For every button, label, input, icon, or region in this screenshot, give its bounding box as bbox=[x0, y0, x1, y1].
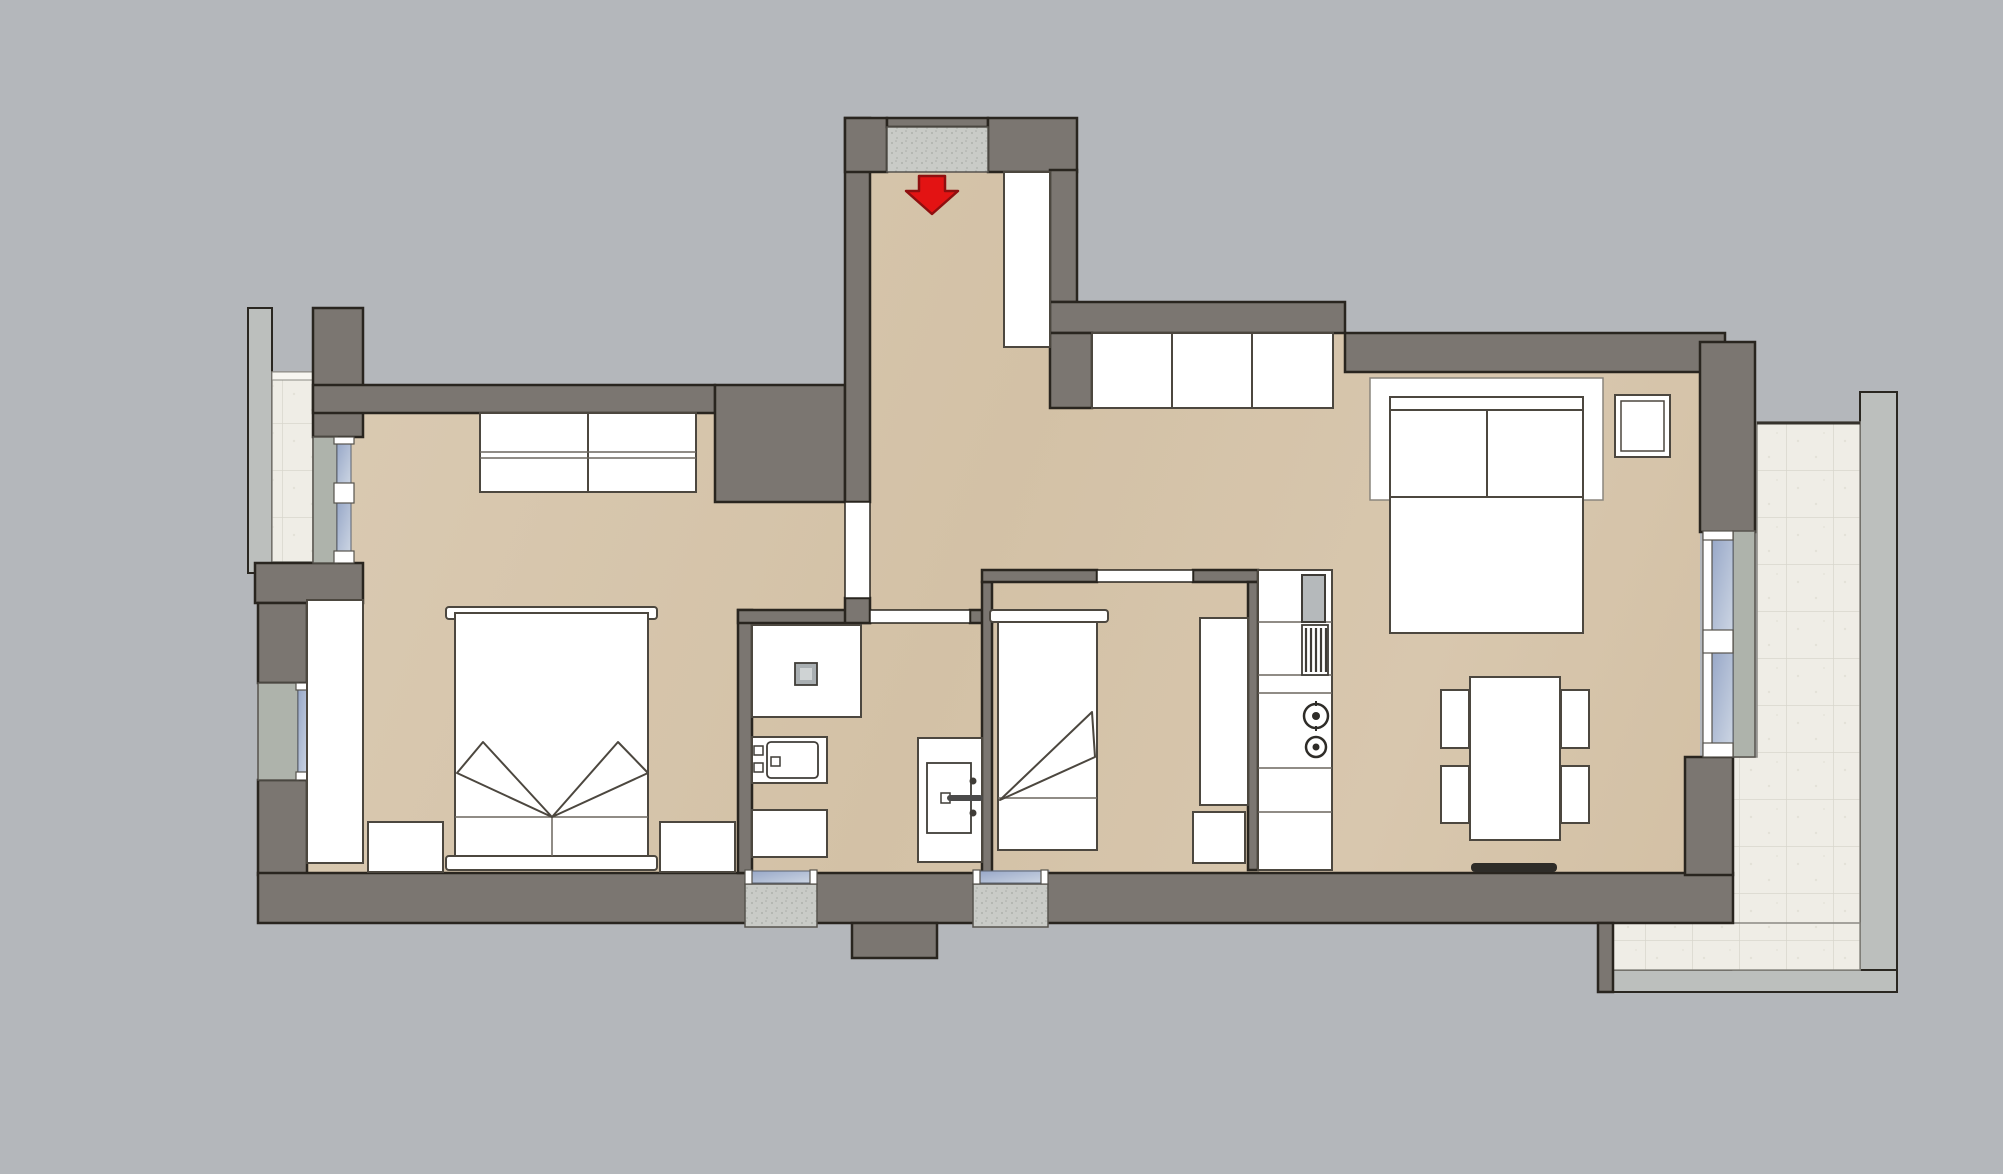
wall-pillar-bottom bbox=[852, 923, 937, 958]
window-right-balcony bbox=[1703, 531, 1755, 757]
wall-left-mid bbox=[255, 563, 363, 603]
window-left-upper bbox=[313, 437, 354, 563]
bedside-cabinet bbox=[1193, 812, 1245, 863]
wall-corridor-left bbox=[845, 118, 870, 502]
wall-bedroom2-left bbox=[982, 582, 992, 873]
door-hinge bbox=[970, 778, 977, 785]
window-glass bbox=[1712, 653, 1733, 743]
dish-drainer bbox=[1302, 625, 1328, 675]
window-frame bbox=[1041, 870, 1048, 884]
wall-entry-top bbox=[887, 118, 988, 127]
window-frame bbox=[810, 870, 817, 884]
dining-chair bbox=[1561, 766, 1589, 823]
radiator bbox=[1471, 863, 1557, 872]
wardrobe bbox=[1200, 618, 1248, 805]
wall-right-upper bbox=[1700, 342, 1755, 532]
wall-bedroom-top bbox=[313, 385, 715, 413]
window-frame bbox=[973, 870, 980, 884]
wall-bedroom2-top-left bbox=[982, 570, 1097, 582]
window-glass bbox=[1712, 540, 1733, 630]
nightstand-left bbox=[368, 822, 443, 872]
cooktop-burner-small bbox=[1306, 737, 1326, 757]
window-bottom-bathroom bbox=[745, 870, 817, 927]
window-frame bbox=[1703, 743, 1733, 757]
window-frame bbox=[745, 870, 752, 884]
window-bottom-bedroom2 bbox=[973, 870, 1048, 927]
bed-headboard bbox=[446, 856, 657, 870]
sofa-backrest bbox=[1390, 397, 1583, 410]
wall-top-band-b bbox=[1345, 333, 1725, 372]
wall-bottom-right-corner bbox=[1598, 923, 1613, 992]
dining-chair bbox=[1561, 690, 1589, 748]
washing-machine bbox=[752, 810, 827, 857]
second-bedroom-doorway bbox=[1097, 570, 1193, 582]
wall-left-b bbox=[258, 780, 307, 875]
upper-cabinets bbox=[1092, 333, 1333, 408]
main-bedroom-doorway bbox=[845, 502, 870, 598]
wall-entry-jamb-left bbox=[845, 118, 887, 172]
dining-chair bbox=[1441, 690, 1469, 748]
dining-chair bbox=[1441, 766, 1469, 823]
wall-right-lower bbox=[1685, 757, 1733, 875]
window-glass bbox=[337, 503, 351, 551]
tap bbox=[754, 746, 763, 755]
wall-top-band-a bbox=[1050, 302, 1345, 333]
wall-bathroom-left bbox=[738, 610, 752, 873]
window-frame bbox=[334, 483, 354, 503]
left-balcony-sill bbox=[272, 372, 313, 380]
wall-left-top-column bbox=[313, 308, 363, 437]
wall-cabinet-pier bbox=[1050, 333, 1092, 408]
floor-plan bbox=[0, 0, 2003, 1174]
left-balcony-railing bbox=[248, 308, 272, 573]
window-frame bbox=[334, 437, 354, 444]
window-glass bbox=[980, 871, 1041, 883]
wall-bedroom2-top-right bbox=[1193, 570, 1258, 582]
sofa-bed-mattress bbox=[1390, 497, 1583, 633]
entrance-threshold bbox=[887, 127, 988, 172]
window-sill bbox=[313, 437, 337, 563]
bottom-balcony-railing bbox=[1613, 970, 1897, 992]
window-sill bbox=[258, 683, 298, 780]
wall-entry-jamb-right bbox=[988, 118, 1077, 172]
window-frame bbox=[1703, 531, 1733, 540]
kitchen-counter bbox=[1258, 570, 1332, 870]
window-sill bbox=[973, 884, 1048, 927]
left-balcony-tiles bbox=[272, 372, 313, 562]
bedroom-door-approach-floor bbox=[715, 490, 845, 612]
wall-corridor-stub bbox=[845, 598, 870, 623]
right-balcony-railing bbox=[1860, 392, 1897, 992]
wall-left-a bbox=[258, 603, 307, 683]
wall-entry-chunk bbox=[715, 385, 845, 502]
window-frame bbox=[334, 551, 354, 563]
window-sill bbox=[745, 884, 817, 927]
window-left-lower bbox=[258, 683, 310, 780]
wall-bedroom2-right bbox=[1248, 582, 1258, 870]
nightstand-right bbox=[660, 822, 735, 872]
double-bed bbox=[446, 607, 657, 870]
window-glass bbox=[752, 871, 810, 883]
single-bed bbox=[990, 610, 1108, 850]
door-leaf bbox=[918, 738, 982, 862]
hall-closet bbox=[1004, 172, 1050, 347]
window-frame bbox=[1703, 630, 1733, 653]
wall-corridor-right bbox=[1050, 170, 1077, 302]
sofa-bed bbox=[1370, 378, 1603, 633]
built-in-wardrobe-left bbox=[307, 600, 363, 863]
bathroom-sink bbox=[752, 737, 827, 783]
side-table bbox=[1615, 395, 1670, 457]
dining-table bbox=[1470, 677, 1560, 840]
drain-knob bbox=[771, 757, 780, 766]
wardrobe-top bbox=[480, 413, 696, 492]
kitchen-sink bbox=[1302, 575, 1325, 622]
window-glass bbox=[337, 444, 351, 483]
window-sill bbox=[1733, 531, 1755, 757]
tap bbox=[754, 763, 763, 772]
bottom-balcony-tiles bbox=[1613, 923, 1860, 970]
floor-plan-canvas bbox=[0, 0, 2003, 1174]
door-hinge bbox=[970, 810, 977, 817]
bathroom-doorway bbox=[870, 610, 970, 623]
bed-mattress bbox=[998, 622, 1097, 850]
shower bbox=[752, 625, 861, 717]
bed-headboard bbox=[990, 610, 1108, 622]
